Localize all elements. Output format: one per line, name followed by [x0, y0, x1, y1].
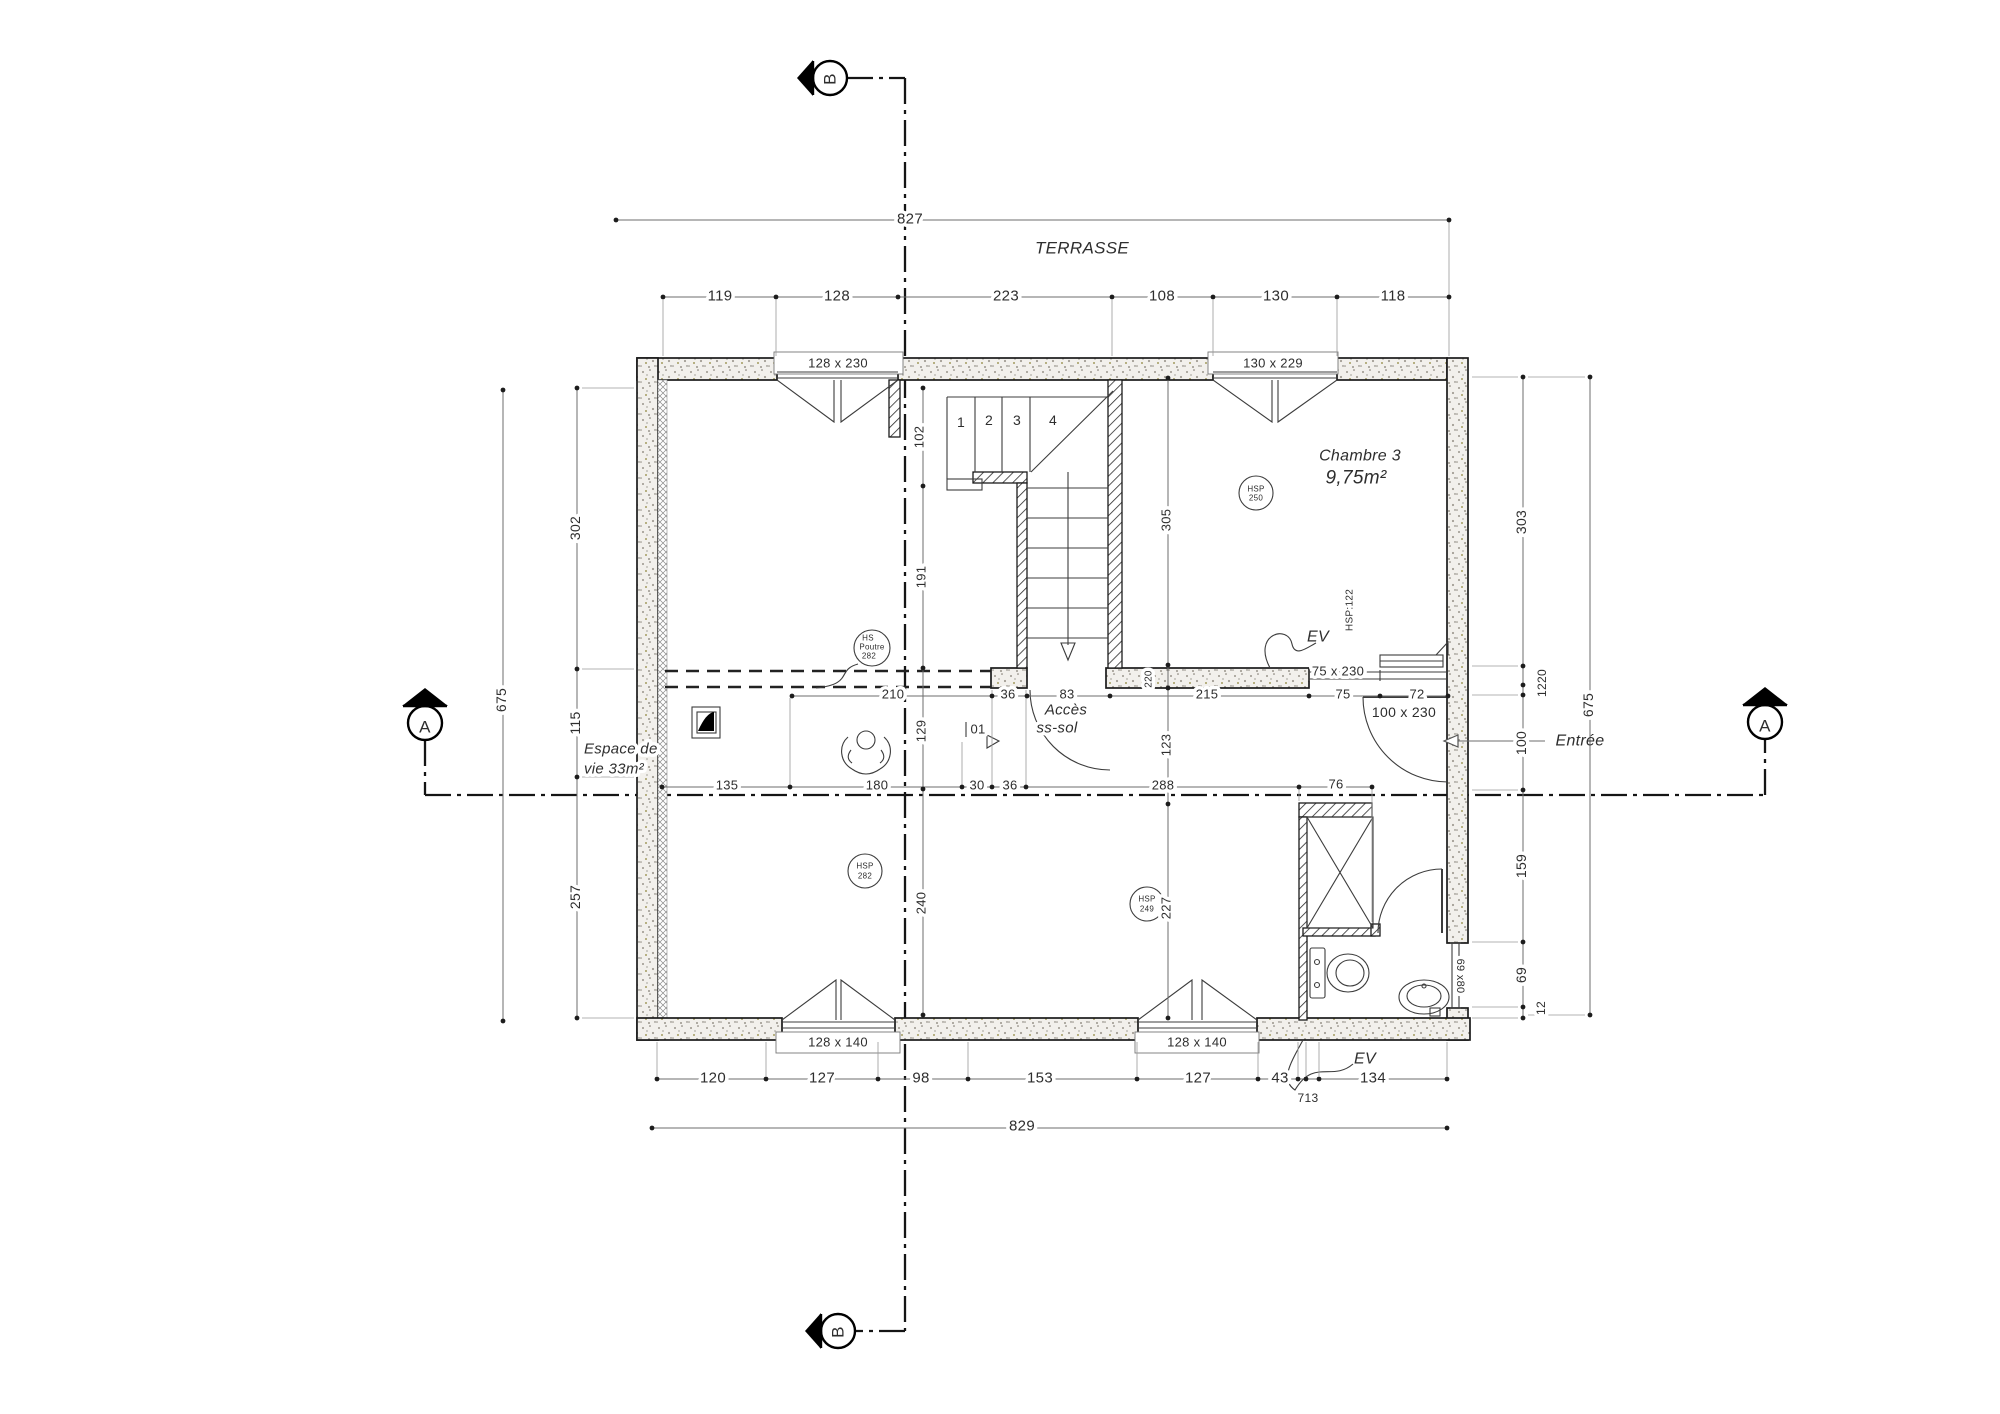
dim-terrasse-118: 118 — [1381, 288, 1406, 305]
floor-plan-canvas: B827TERRASSE119128223108130118128 x 2301… — [0, 0, 2000, 1414]
ev-chambre: EV — [1307, 629, 1330, 646]
interior-walls — [889, 380, 1380, 1020]
dim-305: 305 — [1159, 509, 1174, 532]
dim-100: 100 — [1513, 731, 1529, 755]
dim-288: 288 — [1152, 778, 1175, 793]
hs-poutre-line2: Poutre — [859, 643, 885, 652]
dim-135: 135 — [716, 778, 739, 793]
staircase — [947, 391, 1113, 660]
section-a-right-letter: A — [1759, 717, 1771, 736]
dim-153: 153 — [1027, 1070, 1053, 1087]
text-labels: B827TERRASSE119128223108130118128 x 2301… — [419, 73, 1771, 1338]
section-b-bottom-letter: B — [829, 1326, 848, 1338]
dim-69: 69 — [1513, 967, 1529, 983]
dim-829: 829 — [1009, 1118, 1035, 1135]
beam-dashed — [665, 671, 991, 687]
hsp250-line2: 250 — [1249, 494, 1263, 503]
dim-terrasse-223: 223 — [993, 288, 1019, 305]
dim-675-left: 675 — [493, 688, 509, 712]
dim-191: 191 — [914, 566, 929, 589]
dim-115: 115 — [567, 711, 583, 734]
radiator — [1380, 642, 1448, 667]
dim-129: 129 — [914, 720, 929, 743]
hsp122-note: HSP:122 — [1345, 589, 1356, 631]
stair-direction-arrow — [1061, 472, 1075, 660]
dim-215: 215 — [1196, 687, 1219, 702]
terrasse-title: TERRASSE — [1035, 239, 1129, 258]
dim-220: 220 — [1144, 670, 1155, 688]
dim-76: 76 — [1328, 777, 1343, 792]
dim-terrasse-total: 827 — [897, 211, 923, 228]
dim-210: 210 — [882, 687, 905, 702]
acces-line2: ss-sol — [1037, 720, 1078, 737]
window-label-top-right: 130 x 229 — [1243, 356, 1303, 371]
dim-120: 120 — [700, 1070, 726, 1087]
floor-plan-drawing: B827TERRASSE119128223108130118128 x 2301… — [0, 0, 2000, 1414]
dim-127-a: 127 — [809, 1070, 835, 1087]
section-b-top-letter: B — [821, 73, 840, 85]
dim-terrasse-108: 108 — [1149, 288, 1175, 305]
dim-127-b: 127 — [1185, 1070, 1211, 1087]
dim-36-upper: 36 — [1000, 687, 1015, 702]
dim-72: 72 — [1409, 687, 1424, 702]
dim-102: 102 — [912, 426, 927, 449]
hs-poutre-line1: HS — [862, 634, 874, 643]
dim-675-right: 675 — [1580, 693, 1596, 717]
dim-159: 159 — [1513, 854, 1529, 878]
stair-step-4: 4 — [1049, 412, 1057, 428]
hsp249-line2: 249 — [1140, 905, 1154, 914]
dim-12: 12 — [1534, 1001, 1548, 1015]
entree-label: Entrée — [1556, 733, 1605, 750]
dim-1220: 1220 — [1535, 669, 1549, 697]
stair-step-1: 1 — [957, 414, 965, 430]
window-label-top-left: 128 x 230 — [808, 356, 868, 371]
window-label-69x80: 69 x80 — [1454, 959, 1466, 994]
dim-302: 302 — [567, 516, 583, 540]
toilet — [1310, 948, 1369, 998]
hsp282-line1: HSP — [856, 862, 873, 871]
dim-terrasse-130: 130 — [1263, 288, 1289, 305]
door-tag-01: 01 — [970, 722, 985, 737]
window-label-bottom-right: 128 x 140 — [1167, 1035, 1227, 1050]
ev-bottom-leader — [1287, 1040, 1353, 1090]
dim-240: 240 — [914, 892, 929, 915]
hsp249-line1: HSP — [1138, 895, 1155, 904]
dim-83: 83 — [1059, 687, 1074, 702]
dim-134: 134 — [1360, 1070, 1386, 1087]
ev-bottom: EV — [1354, 1051, 1377, 1068]
section-a-left-letter: A — [419, 718, 431, 737]
dim-123: 123 — [1159, 734, 1174, 757]
room-chambre3-name: Chambre 3 — [1319, 448, 1401, 465]
stair-step-3: 3 — [1013, 412, 1021, 428]
dim-180: 180 — [866, 778, 889, 793]
dim-terrasse-119: 119 — [708, 288, 733, 305]
bathroom-door — [1378, 869, 1442, 933]
person-figure — [842, 731, 891, 774]
section-line-bb — [847, 78, 905, 1331]
hsp250-line1: HSP — [1247, 485, 1264, 494]
dim-713: 713 — [1298, 1091, 1319, 1105]
dim-36-lower: 36 — [1002, 778, 1017, 793]
dim-98: 98 — [912, 1070, 929, 1087]
espace-de-vie-line1: Espace de — [584, 741, 658, 758]
window-label-75x230: 75 x 230 — [1312, 664, 1364, 679]
window-label-bottom-left: 128 x 140 — [808, 1035, 868, 1050]
room-chambre3-area: 9,75m² — [1326, 468, 1387, 489]
doors — [1030, 690, 1448, 933]
dim-terrasse-128: 128 — [824, 288, 850, 305]
hsp282-line2: 282 — [858, 872, 872, 881]
dim-257: 257 — [567, 885, 583, 909]
stove-symbol — [692, 707, 720, 738]
acces-line1: Accès — [1044, 702, 1088, 719]
dim-75: 75 — [1335, 687, 1350, 702]
door-label-100x230: 100 x 230 — [1372, 704, 1436, 720]
sink — [1399, 980, 1449, 1016]
dim-30: 30 — [969, 778, 984, 793]
dim-43: 43 — [1271, 1070, 1288, 1087]
hs-poutre-line3: 282 — [862, 652, 876, 661]
hs-poutre-leader — [816, 664, 858, 688]
espace-de-vie-line2: vie 33m² — [584, 761, 645, 778]
dim-303: 303 — [1513, 510, 1529, 534]
closet-cross — [1307, 817, 1373, 928]
dim-227: 227 — [1159, 897, 1174, 920]
stair-step-2: 2 — [985, 412, 993, 428]
extension-lines — [582, 222, 1585, 1076]
